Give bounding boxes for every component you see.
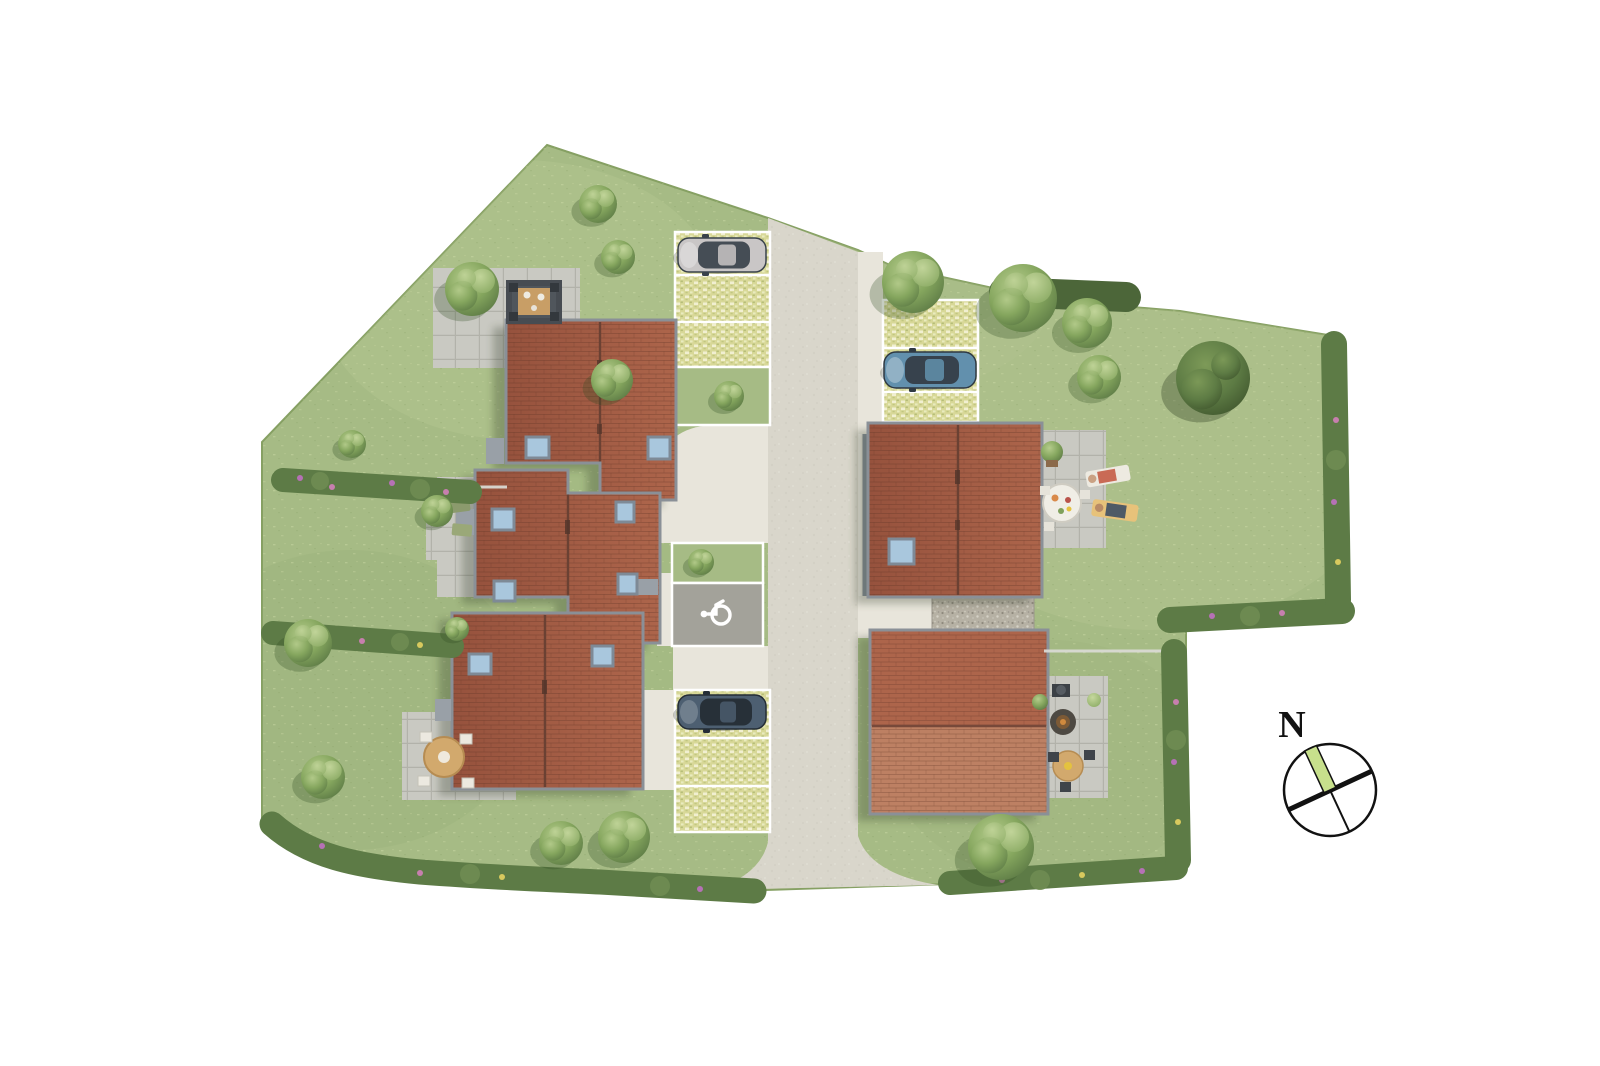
car-dark (673, 691, 767, 733)
skylight (494, 581, 515, 601)
pergola-dining-set (506, 280, 562, 324)
hedge-row (1174, 652, 1178, 860)
site-plan-page: N (0, 0, 1600, 1066)
car-silver (673, 234, 767, 276)
house-bottom-right (870, 630, 1048, 814)
disabled-parking-bay (672, 543, 763, 646)
skylight (492, 509, 514, 530)
north-label: N (1278, 704, 1305, 746)
skylight (469, 654, 491, 674)
skylight (592, 646, 613, 666)
skylight (618, 574, 637, 594)
skylight (526, 437, 549, 458)
skylight (648, 437, 670, 459)
site-plan: N (0, 0, 1600, 1066)
house-top-right (868, 423, 1042, 597)
skylight (616, 502, 634, 522)
car-blue (880, 348, 976, 392)
skylight (889, 539, 914, 564)
house-bottom-left (452, 613, 643, 789)
